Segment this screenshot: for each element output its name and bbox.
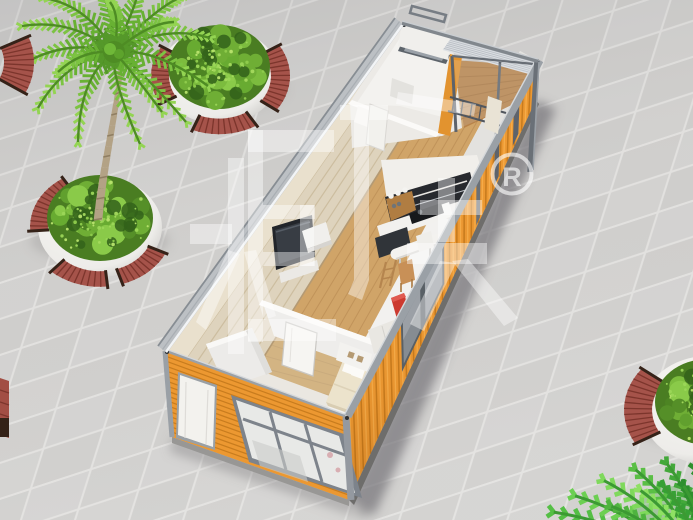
svg-text:R: R bbox=[502, 162, 522, 192]
